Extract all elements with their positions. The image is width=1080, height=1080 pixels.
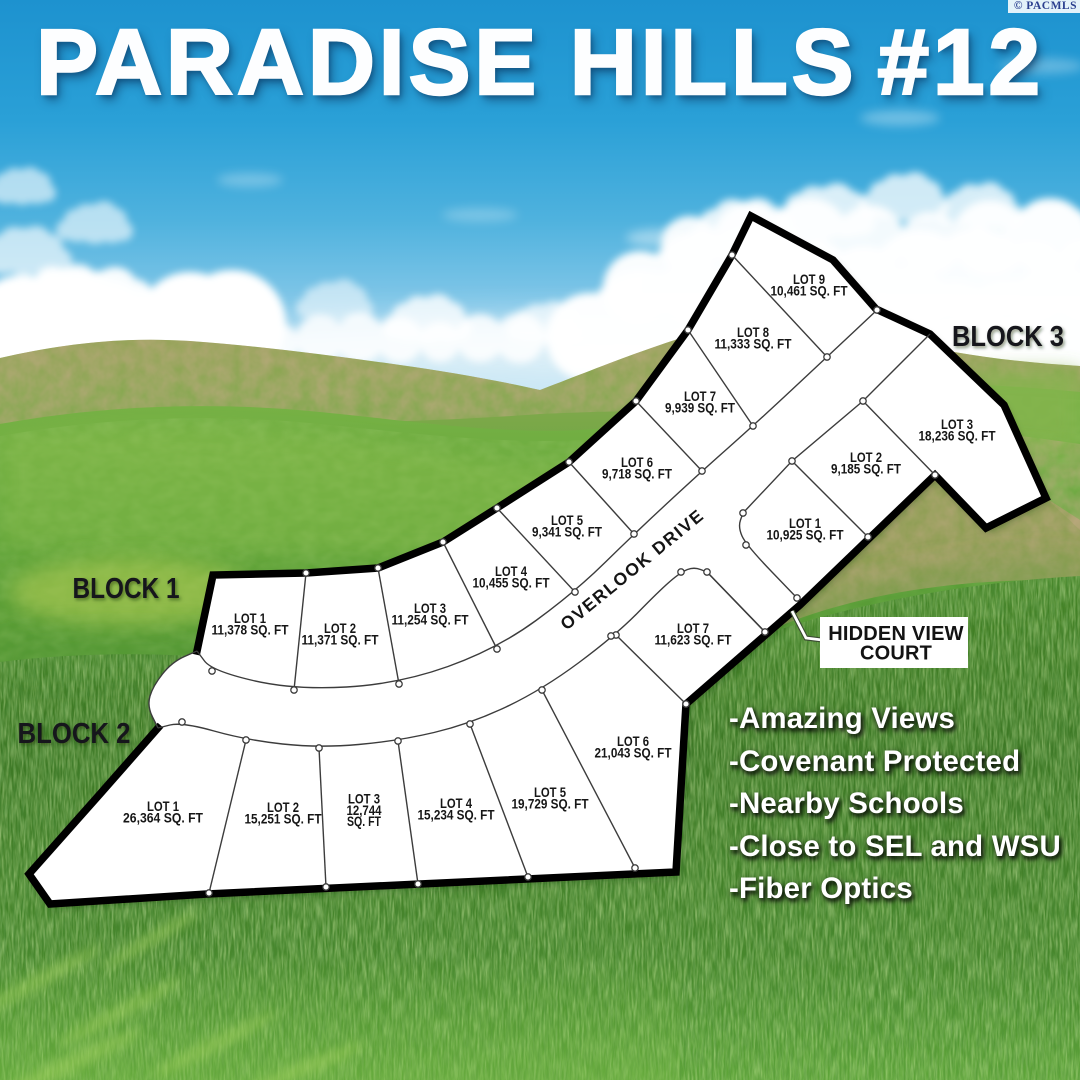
svg-text:BLOCK 2: BLOCK 2: [18, 718, 131, 750]
svg-text:BLOCK 1: BLOCK 1: [73, 573, 180, 605]
svg-text:BLOCK 3: BLOCK 3: [952, 321, 1064, 353]
svg-text:LOT 312,744SQ. FT: LOT 312,744SQ. FT: [347, 792, 382, 829]
